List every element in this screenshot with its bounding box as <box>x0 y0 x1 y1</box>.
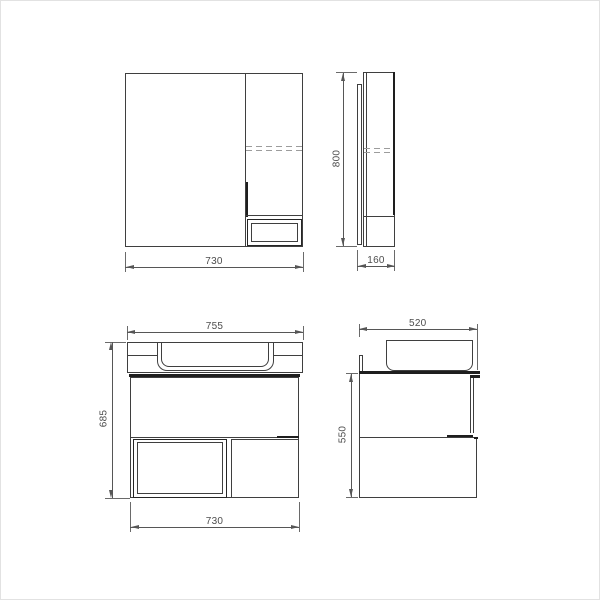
vanity-side-body-bottom-edge <box>359 497 477 498</box>
vanity-side-drawer-divider-line <box>359 437 477 438</box>
vanity-side-height-arrow-bottom <box>349 489 353 497</box>
vanity-side-body-back-edge <box>359 374 360 498</box>
vanity-side-handle-end-mark <box>474 437 479 440</box>
vanity-side-view: 520 550 <box>0 0 600 600</box>
vanity-side-splash-tab <box>359 355 363 371</box>
vanity-side-depth-arrow-right <box>469 327 477 331</box>
vanity-side-height-dimension-line <box>351 374 352 497</box>
vanity-side-height-extension-bottom <box>346 497 358 498</box>
vanity-side-lower-front-edge <box>476 437 477 497</box>
vanity-side-counter-bracket <box>470 375 480 378</box>
vanity-side-depth-label: 520 <box>398 318 438 329</box>
vanity-side-countertop-thick-line <box>359 371 481 374</box>
technical-drawing-canvas: 730 800 160 755 <box>0 0 600 600</box>
vanity-side-basin <box>386 340 473 371</box>
vanity-side-depth-arrow-left <box>359 327 367 331</box>
vanity-side-drawer-front-line-1 <box>470 378 471 433</box>
vanity-side-handle-mark <box>447 435 473 438</box>
vanity-side-depth-extension-right <box>477 324 478 370</box>
vanity-side-height-label: 550 <box>338 414 349 454</box>
vanity-side-depth-dimension-line <box>359 329 478 330</box>
vanity-side-drawer-front-line-2 <box>473 378 474 433</box>
vanity-side-height-arrow-top <box>349 374 353 382</box>
